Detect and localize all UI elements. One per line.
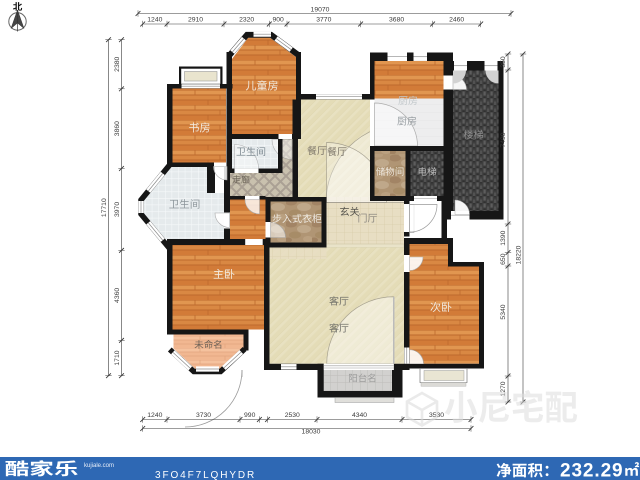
svg-text:900: 900	[272, 17, 284, 24]
svg-text:350: 350	[500, 56, 507, 68]
svg-text:232.29: 232.29	[560, 461, 624, 480]
svg-text:18030: 18030	[302, 429, 321, 436]
svg-text:3FO4F7LQHYDR: 3FO4F7LQHYDR	[155, 470, 256, 480]
svg-text:19070: 19070	[311, 7, 330, 14]
svg-text:1710: 1710	[114, 350, 121, 365]
svg-text:2910: 2910	[188, 17, 203, 24]
svg-text:990: 990	[244, 412, 256, 419]
svg-text:4360: 4360	[114, 288, 121, 303]
svg-text:2530: 2530	[285, 412, 300, 419]
svg-text:18220: 18220	[516, 245, 523, 264]
svg-text:650: 650	[500, 253, 507, 265]
svg-text:5340: 5340	[500, 304, 507, 319]
svg-text:1240: 1240	[147, 412, 162, 419]
svg-text:7490: 7490	[500, 132, 507, 147]
svg-text:3730: 3730	[196, 412, 211, 419]
svg-text:3770: 3770	[316, 17, 331, 24]
svg-text:3860: 3860	[114, 121, 121, 136]
svg-text:4340: 4340	[352, 412, 367, 419]
svg-text:kujiale.com: kujiale.com	[84, 463, 114, 469]
svg-text:3680: 3680	[389, 17, 404, 24]
svg-text:2380: 2380	[114, 56, 121, 71]
svg-text:17710: 17710	[101, 198, 108, 217]
svg-text:3970: 3970	[114, 202, 121, 217]
svg-text:2320: 2320	[239, 17, 254, 24]
svg-text:1390: 1390	[500, 230, 507, 245]
svg-text:2460: 2460	[449, 17, 464, 24]
svg-text:1240: 1240	[147, 17, 162, 24]
